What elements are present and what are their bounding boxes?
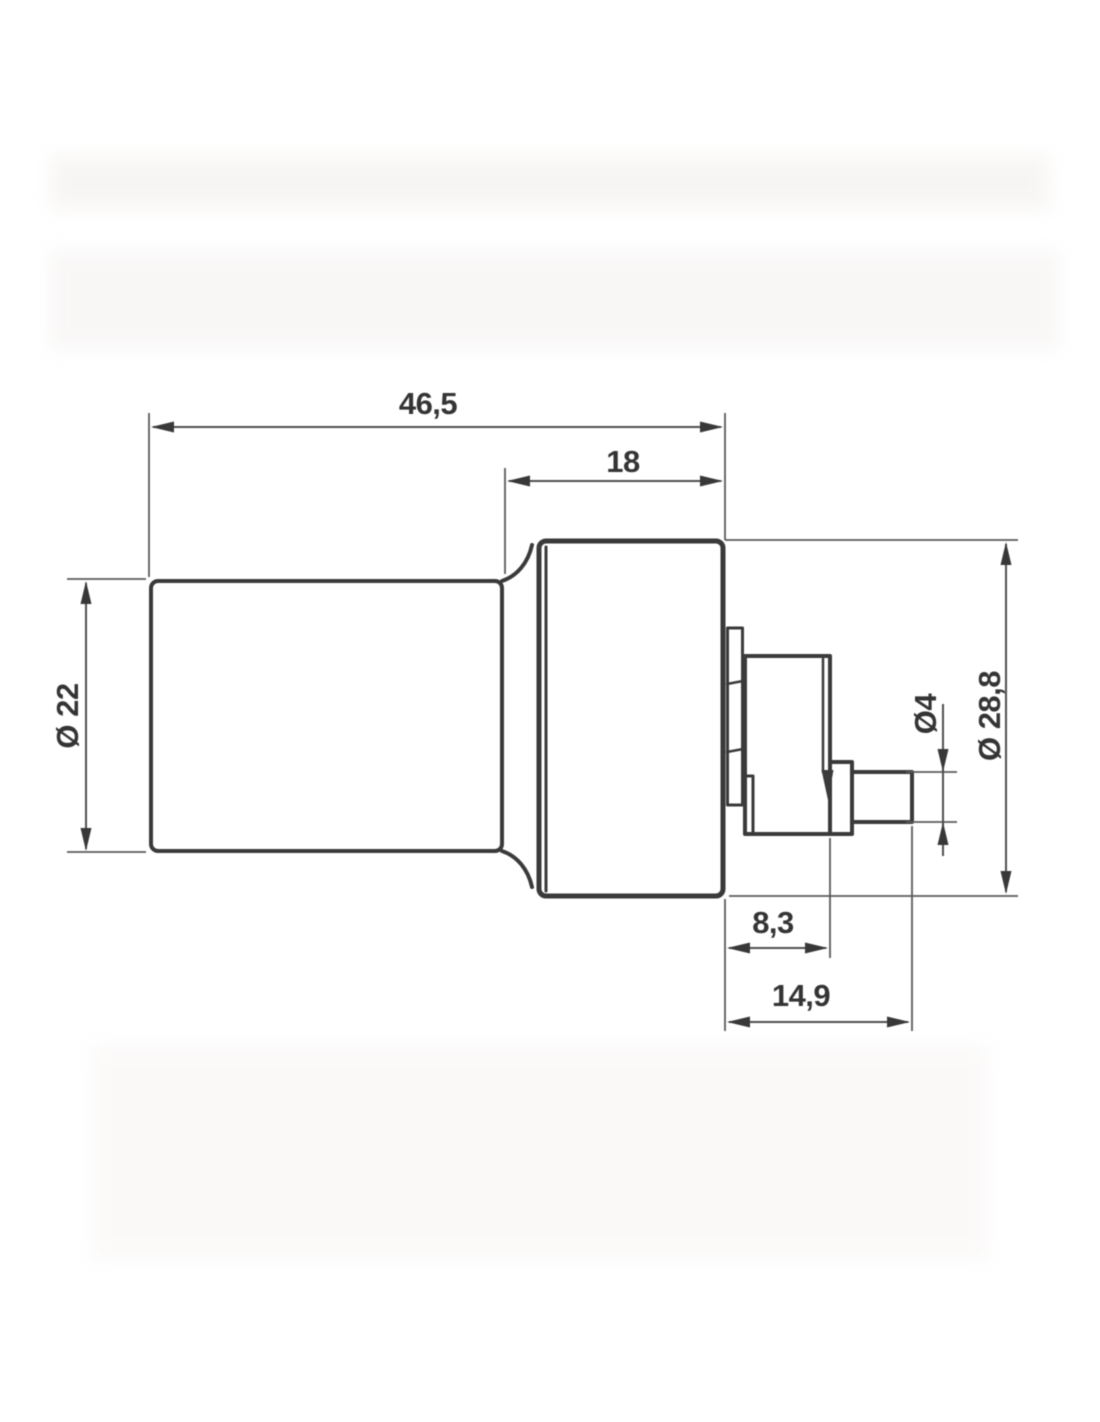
small-cylinder-outline — [151, 581, 502, 851]
head-diameter-label: Ø 28,8 — [972, 671, 1007, 761]
arrowhead-left — [727, 943, 750, 954]
overall-length-label: 46,5 — [399, 386, 458, 421]
taper-curve-bottom — [502, 851, 532, 887]
shaft-length-label: 14,9 — [772, 978, 831, 1013]
arrowhead-left — [727, 1017, 750, 1028]
shaft-diameter-label: Ø4 — [908, 693, 943, 735]
arrowhead-right — [700, 422, 723, 433]
arrowhead-right — [887, 1017, 910, 1028]
dimension-drawing-canvas: 46,5 18 Ø 22 Ø 28,8 Ø4 8,3 14,9 — [0, 0, 1100, 1422]
large-cylinder-outline — [539, 541, 723, 896]
arrowhead-left — [507, 476, 530, 487]
hub-cylinder-outline — [745, 656, 830, 834]
flange-disc-outline — [728, 628, 743, 805]
taper-curve-top — [502, 545, 532, 581]
arrowhead-up — [938, 822, 949, 845]
head-length-label: 18 — [606, 444, 640, 479]
arrowhead-up — [1001, 542, 1012, 565]
arrowhead-left — [151, 422, 174, 433]
arrowhead-right — [700, 476, 723, 487]
hub-length-label: 8,3 — [752, 905, 794, 940]
part-outline — [151, 541, 912, 896]
collar-outline — [830, 762, 852, 834]
extension-lines — [67, 413, 1018, 1031]
flange-segment-divider — [727, 749, 743, 752]
arrowhead-down — [81, 828, 92, 851]
arrowhead-down — [1001, 871, 1012, 894]
body-diameter-label: Ø 22 — [50, 683, 85, 748]
arrowhead-up — [81, 581, 92, 604]
arrowhead-right — [805, 943, 828, 954]
flange-segment-divider — [727, 681, 743, 684]
output-shaft-outline — [852, 772, 912, 822]
arrowhead-down — [938, 749, 949, 772]
drawing-page: 46,5 18 Ø 22 Ø 28,8 Ø4 8,3 14,9 — [0, 0, 1100, 1422]
